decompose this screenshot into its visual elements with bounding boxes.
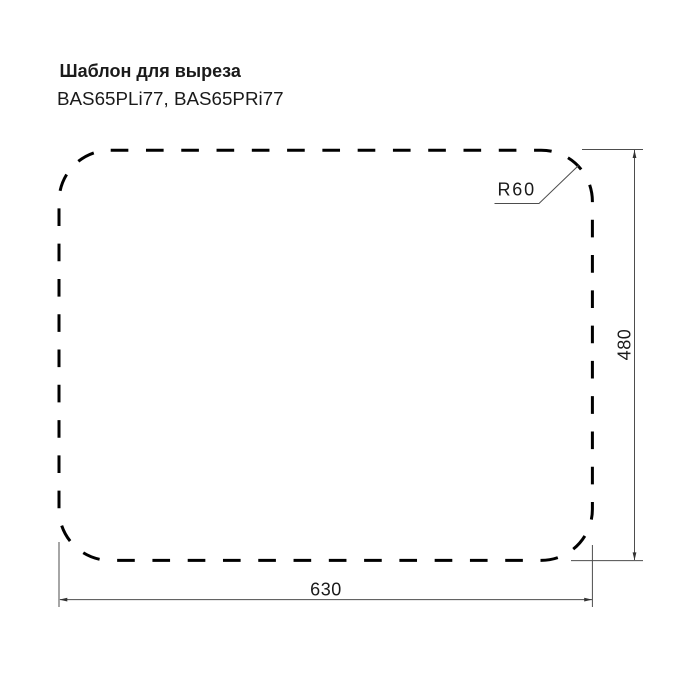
- svg-text:BAS65PLi77, BAS65PRi77: BAS65PLi77, BAS65PRi77: [57, 88, 284, 109]
- svg-text:630: 630: [310, 580, 342, 600]
- svg-text:Шаблон для выреза: Шаблон для выреза: [60, 61, 242, 81]
- svg-text:R60: R60: [498, 180, 536, 200]
- svg-text:480: 480: [615, 329, 635, 361]
